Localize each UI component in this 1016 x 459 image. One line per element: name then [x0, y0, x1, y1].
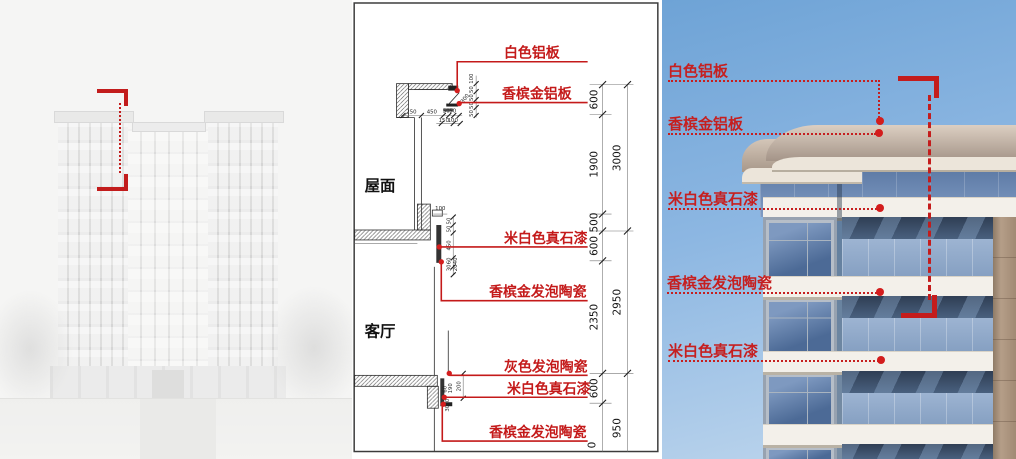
leader-dot-1 [876, 117, 884, 125]
render-callout-white-aluminum: 白色铝板 [668, 64, 728, 79]
column-window-2 [766, 299, 834, 354]
callout-label: 香槟金发泡陶瓷 [488, 284, 587, 301]
dim-m-50b: 50 [447, 225, 453, 232]
dim-m-30: 30 [447, 264, 453, 271]
dim-600a: 600 [589, 90, 601, 110]
callout-label: 米白色真石漆 [504, 230, 588, 247]
elevation-panel [0, 0, 352, 459]
callout-label: 米白色真石漆 [507, 380, 591, 397]
center-roof-cap [132, 122, 206, 132]
section-marker-bottom-bracket [901, 295, 937, 318]
render-callout-champagne-aluminum: 香槟金铝板 [668, 117, 743, 132]
leader-dotted-5 [668, 360, 879, 362]
leader-dot-4 [876, 288, 884, 296]
dim-m-20: 20 [453, 264, 459, 271]
render-callout-foam-ceramic: 香槟金发泡陶瓷 [667, 276, 772, 291]
dim-950: 950 [611, 418, 623, 438]
dim-m-60: 60 [447, 257, 453, 264]
leader-dot-5 [877, 356, 885, 364]
detail-marker-bottom-bracket [97, 174, 128, 191]
dim-100-mid: 100 [435, 206, 446, 212]
dim-m-40: 40 [453, 257, 459, 264]
dim-2950: 2950 [611, 289, 623, 316]
callout-label: 白色铝板 [504, 45, 560, 62]
dim-b-30a: 30 [445, 398, 451, 405]
dim-1900: 1900 [589, 151, 601, 178]
dim-250: 250 [406, 110, 417, 116]
detail-sheet: 250 450 50 50 150 100 100 50 50 50 50 30… [0, 0, 1016, 459]
dim-50b: 50 [449, 109, 456, 115]
roof-cornice-lip [772, 157, 1016, 172]
dim-m-450: 450 [447, 240, 453, 251]
window-transom-3 [842, 371, 993, 393]
leader-dot-2 [875, 129, 883, 137]
tree-right [266, 286, 362, 410]
section-detail-drawing: 250 450 50 50 150 100 100 50 50 50 50 30… [352, 2, 662, 455]
left-roof-cap [54, 111, 134, 123]
dim-500: 500 [589, 213, 601, 233]
dim-b-30b: 30 [445, 404, 451, 411]
dim-b-200: 200 [457, 381, 463, 392]
leader-dotted-4 [667, 292, 877, 294]
dim-450: 450 [427, 110, 438, 116]
column-window-4 [766, 447, 834, 459]
leader-dotted-2 [668, 133, 876, 135]
detail-marker-top-bracket [97, 89, 128, 106]
balcony-glass-1 [842, 239, 993, 276]
dim-2350: 2350 [589, 304, 601, 331]
room-label-living: 客厅 [365, 322, 396, 341]
room-label-roof: 屋面 [365, 177, 396, 195]
dim-b-60: 60 [442, 385, 448, 392]
ground-path [140, 399, 216, 459]
render-callout-stone-paint-2: 米白色真石漆 [668, 344, 758, 359]
dim-partial: 0 [587, 442, 599, 449]
window-transom-1 [842, 217, 993, 239]
dim-100b: 100 [448, 118, 459, 124]
leader-dotted-3 [668, 208, 877, 210]
detail-marker-dotted-line [119, 103, 121, 173]
column-window-1 [766, 220, 834, 279]
roof-cornice-band [766, 125, 1016, 161]
window-transom-4 [842, 444, 993, 459]
side-pillar [993, 217, 1016, 459]
dim-3000: 3000 [611, 145, 623, 172]
dim-v-100: 100 [469, 73, 475, 84]
callout-label: 香槟金铝板 [501, 86, 572, 103]
balcony-glass-3 [842, 393, 993, 424]
right-roof-cap [204, 111, 284, 123]
callout-label: 灰色发泡陶瓷 [504, 358, 588, 375]
render-panel: 白色铝板 香槟金铝板 米白色真石漆 香槟金发泡陶瓷 米白色真石漆 [662, 0, 1016, 459]
center-bay [128, 129, 208, 367]
dim-v-50a: 50 [469, 86, 475, 93]
dim-600c: 600 [589, 378, 601, 398]
dim-m-50a: 50 [447, 217, 453, 224]
callout-label: 香槟金发泡陶瓷 [488, 424, 587, 441]
dim-b-190: 190 [448, 383, 454, 394]
dim-600b: 600 [589, 236, 601, 256]
leader-dotted-1v [878, 80, 880, 118]
leader-dotted-1 [668, 80, 880, 82]
section-marker-dashed-line [928, 95, 931, 300]
balcony-glass-2 [842, 318, 993, 351]
render-callout-stone-paint-1: 米白色真石漆 [668, 192, 758, 207]
leader-dot-3 [876, 204, 884, 212]
section-marker-top-bracket [898, 76, 939, 98]
column-window-3 [766, 374, 834, 427]
dim-v-50d: 50 [469, 110, 475, 117]
